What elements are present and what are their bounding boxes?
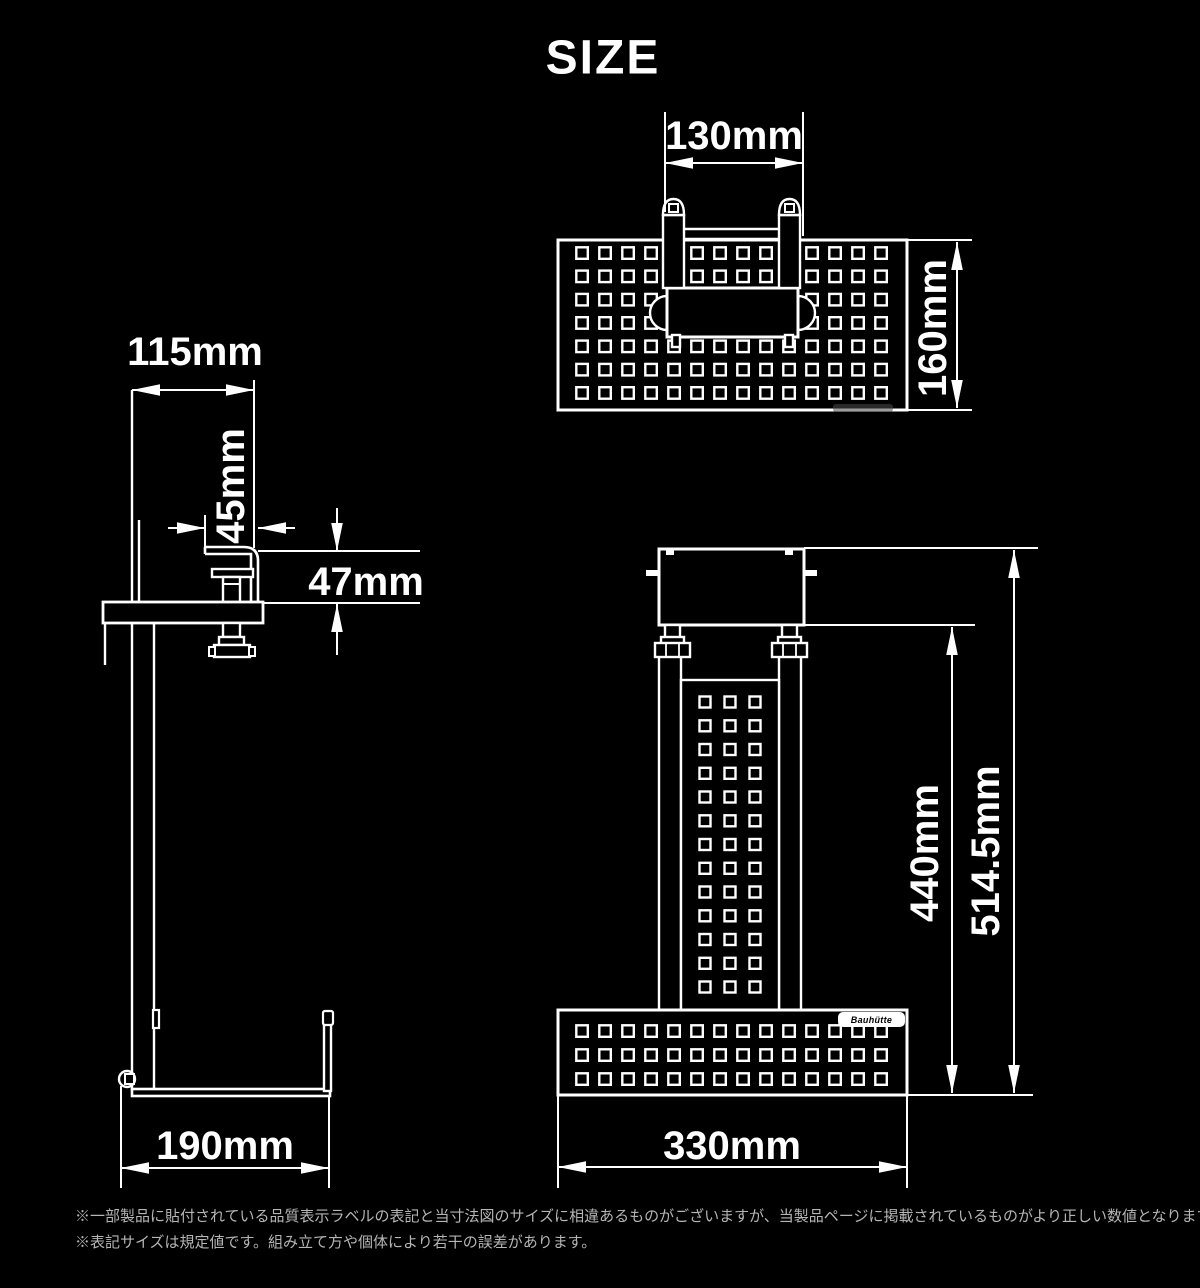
dim-label-top-depth: 115mm [127, 332, 263, 372]
dim-label-clamp-plate-depth: 45mm [211, 428, 251, 544]
dim-label-plate-depth: 160mm [913, 259, 953, 397]
dim-label-total-height: 514.5mm [966, 765, 1006, 936]
page-title: SIZE [546, 31, 661, 86]
footnote-line-1: ※一部製品に貼付されている品質表示ラベルの表記と当寸法図のサイズに相違あるものが… [75, 1204, 1200, 1230]
dim-label-column-height: 440mm [905, 784, 945, 922]
dim-label-clamp-width: 130mm [665, 116, 803, 156]
plate-print-logo [833, 404, 893, 412]
brand-logo-badge: Bauhütte [838, 1012, 905, 1027]
side-view [103, 380, 420, 1188]
dim-label-base-depth: 190mm [156, 1126, 294, 1166]
footnotes: ※一部製品に貼付されている品質表示ラベルの表記と当寸法図のサイズに相違あるものが… [75, 1204, 1200, 1256]
diagram-linework [0, 0, 1200, 1288]
size-spec-diagram: SIZE 130mm 160mm 115mm 45mm 47mm 190mm 4… [0, 0, 1200, 1288]
footnote-line-2: ※表記サイズは規定値です。組み立て方や個体により若干の誤差があります。 [75, 1230, 1200, 1256]
dim-label-base-width: 330mm [663, 1126, 801, 1166]
dim-label-clamp-opening: 47mm [308, 562, 424, 602]
